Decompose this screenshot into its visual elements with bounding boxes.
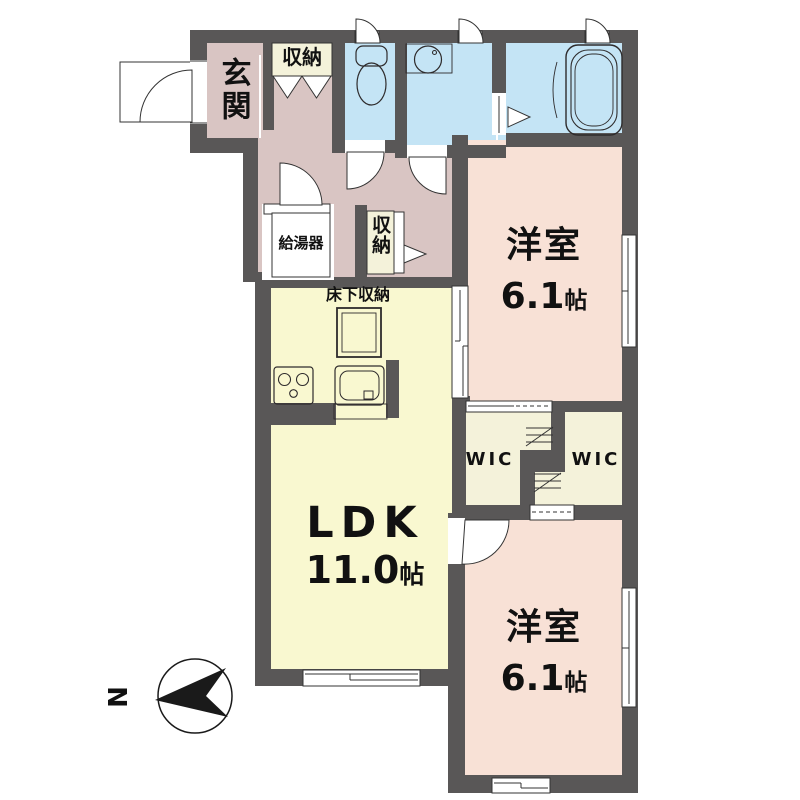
ldk-window [303, 670, 420, 686]
compass [155, 659, 232, 733]
compass-north-label: N [104, 682, 134, 712]
bath-floor [498, 43, 624, 140]
bedroom-top-area-unit: 帖 [564, 288, 587, 314]
ldk-area-unit: 帖 [399, 560, 424, 589]
bath-window [585, 19, 610, 43]
closet-top-label: 収納 [272, 47, 332, 68]
bedroom-top-area: 6.1帖 [494, 278, 594, 316]
genkan-label: 玄関 [217, 57, 249, 123]
toilet-floor [338, 43, 398, 150]
closet-hall-door [394, 212, 404, 273]
bedroom-bottom-area-unit: 帖 [564, 670, 587, 696]
ldk-label: LDK [295, 501, 435, 546]
closet-hall-label: 収納 [369, 215, 389, 255]
washroom-floor [398, 43, 496, 153]
bedroom-top-area-value: 6.1 [501, 276, 565, 317]
bedroom-bottom-label: 洋室 [494, 609, 594, 647]
toilet-window [355, 19, 380, 43]
floor-plan-drawing [0, 0, 800, 800]
underfloor-storage-label: 床下収納 [312, 287, 404, 304]
entrance-door [120, 60, 207, 124]
ldk-area-value: 11.0 [306, 548, 400, 592]
bedroom-bottom-area-value: 6.1 [501, 658, 565, 699]
ldk-floor [258, 280, 458, 672]
bedroom-top-label: 洋室 [494, 227, 594, 265]
washroom-window [458, 19, 483, 43]
entrance-door-swing [140, 70, 192, 122]
ldk-area: 11.0帖 [295, 551, 435, 591]
wic-left-label: WIC [462, 451, 518, 470]
bedroom-bottom-small-window [492, 778, 550, 793]
water-heater-label: 給湯器 [272, 236, 330, 252]
bedroom-top-floor [460, 140, 624, 405]
bedroom-bottom-area: 6.1帖 [494, 660, 594, 698]
bedroom-top-window [622, 235, 636, 347]
floor-plan: 玄関 収納 収納 給湯器 床下収納 LDK 11.0帖 洋室 6.1帖 洋室 6… [0, 0, 800, 800]
bedroom-bottom-window [622, 588, 636, 707]
wic-right-label: WIC [568, 451, 624, 470]
